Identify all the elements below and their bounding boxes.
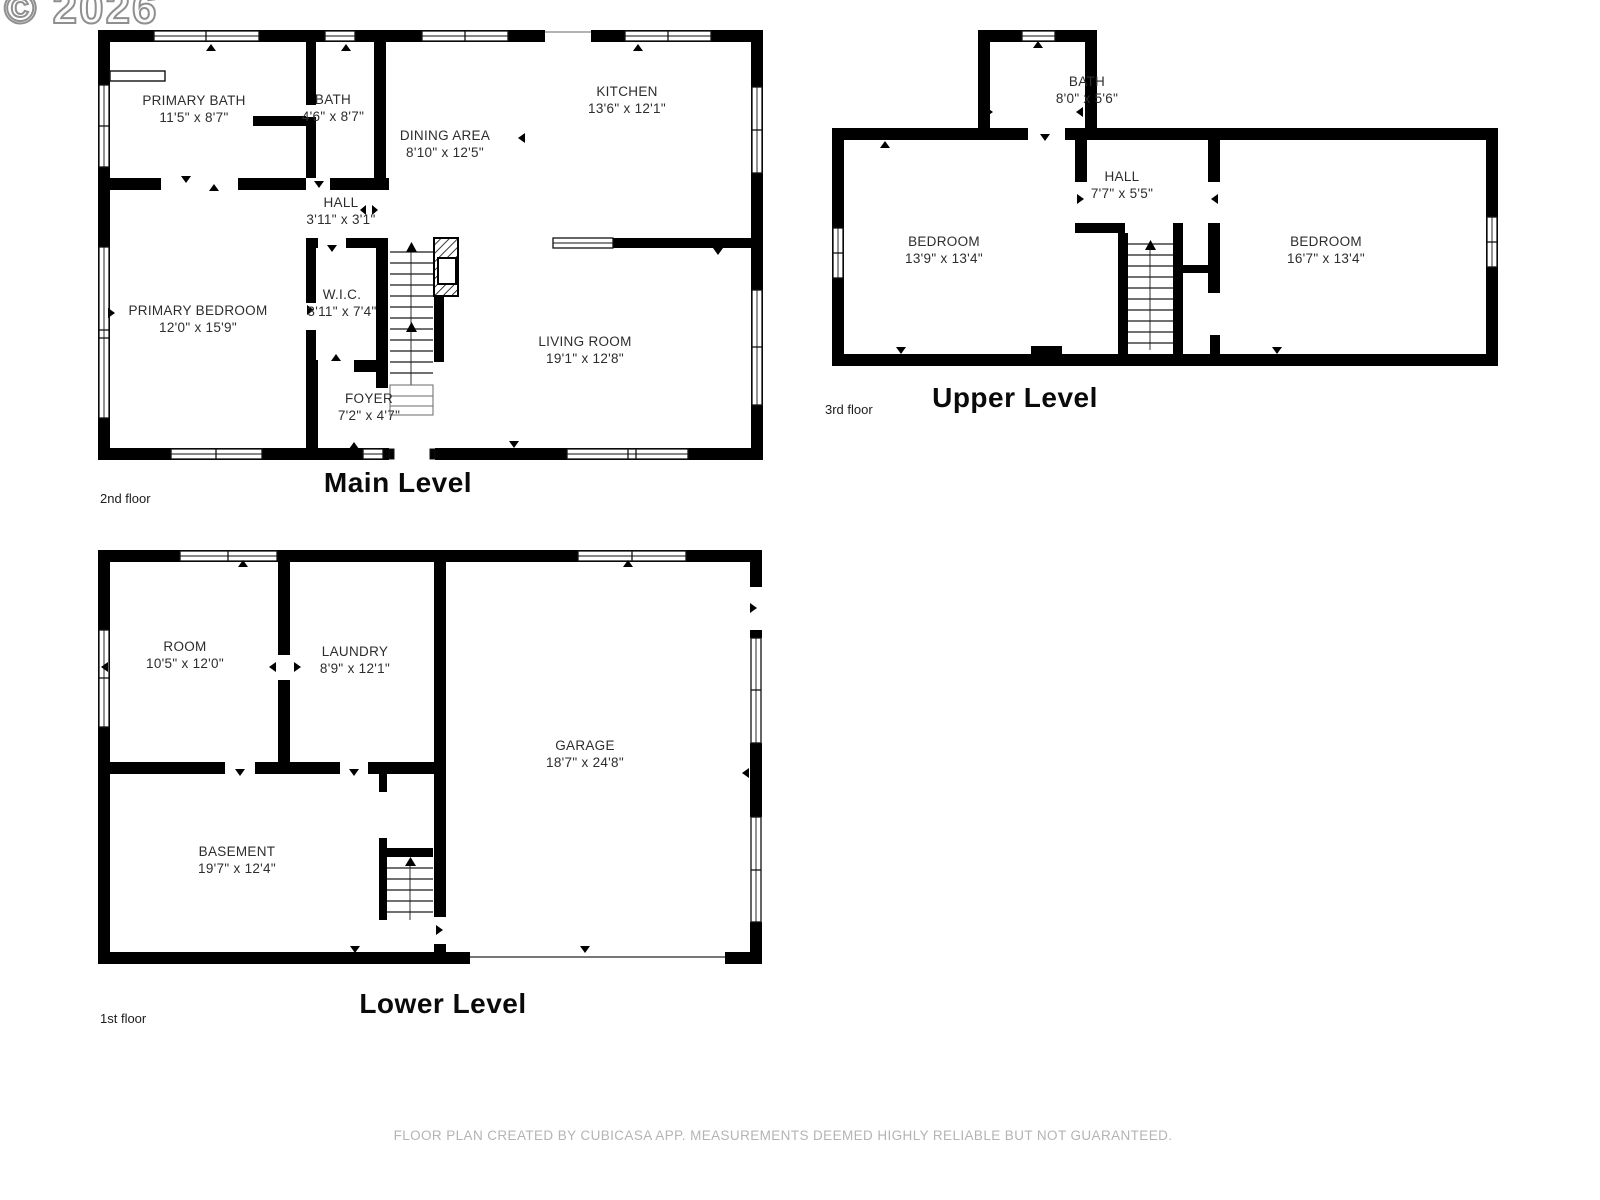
room-label-bath: BATH4'6" x 8'7"	[302, 91, 364, 125]
walls	[98, 550, 762, 964]
copyright-watermark: © 2026	[4, 0, 159, 34]
main-level-floor-label: 2nd floor	[100, 491, 151, 506]
upper-level-plan	[832, 30, 1498, 366]
windows	[99, 551, 761, 957]
room-label-dining-area: DINING AREA8'10" x 12'5"	[400, 127, 490, 161]
room-label-living-room: LIVING ROOM19'1" x 12'8"	[538, 333, 631, 367]
upper-level-floor-label: 3rd floor	[825, 402, 873, 417]
room-label-bedroom-right: BEDROOM16'7" x 13'4"	[1287, 233, 1365, 267]
stairs	[387, 857, 433, 920]
room-label-room: ROOM10'5" x 12'0"	[146, 638, 224, 672]
floorplan-page: © 2026 PRIMARY BATH11'5" x 8'7" BATH4'6"…	[0, 0, 1600, 1200]
lower-level-floor-label: 1st floor	[100, 1011, 146, 1026]
room-label-wic: W.I.C.3'11" x 7'4"	[307, 286, 376, 320]
stairs	[1128, 240, 1173, 350]
chimney	[434, 238, 458, 296]
room-label-laundry: LAUNDRY8'9" x 12'1"	[320, 643, 390, 677]
room-label-hall: HALL3'11" x 3'1"	[306, 194, 375, 228]
room-label-garage: GARAGE18'7" x 24'8"	[546, 737, 624, 771]
room-label-upper-bath: BATH8'0" x 5'6"	[1056, 73, 1118, 107]
door-arrows	[101, 560, 757, 953]
lower-level-plan	[98, 550, 762, 964]
walls	[832, 30, 1498, 366]
room-label-basement: BASEMENT19'7" x 12'4"	[198, 843, 276, 877]
disclaimer-text: FLOOR PLAN CREATED BY CUBICASA APP. MEAS…	[394, 1128, 1173, 1143]
room-label-bedroom-left: BEDROOM13'9" x 13'4"	[905, 233, 983, 267]
floorplan-drawing	[0, 0, 1600, 1200]
room-label-kitchen: KITCHEN13'6" x 12'1"	[588, 83, 666, 117]
room-label-primary-bath: PRIMARY BATH11'5" x 8'7"	[142, 92, 245, 126]
main-level-title: Main Level	[324, 467, 472, 499]
room-label-upper-hall: HALL7'7" x 5'5"	[1091, 168, 1153, 202]
upper-level-title: Upper Level	[932, 382, 1098, 414]
room-label-foyer: FOYER7'2" x 4'7"	[338, 390, 400, 424]
room-label-primary-bedroom: PRIMARY BEDROOM12'0" x 15'9"	[128, 302, 267, 336]
lower-level-title: Lower Level	[359, 988, 526, 1020]
